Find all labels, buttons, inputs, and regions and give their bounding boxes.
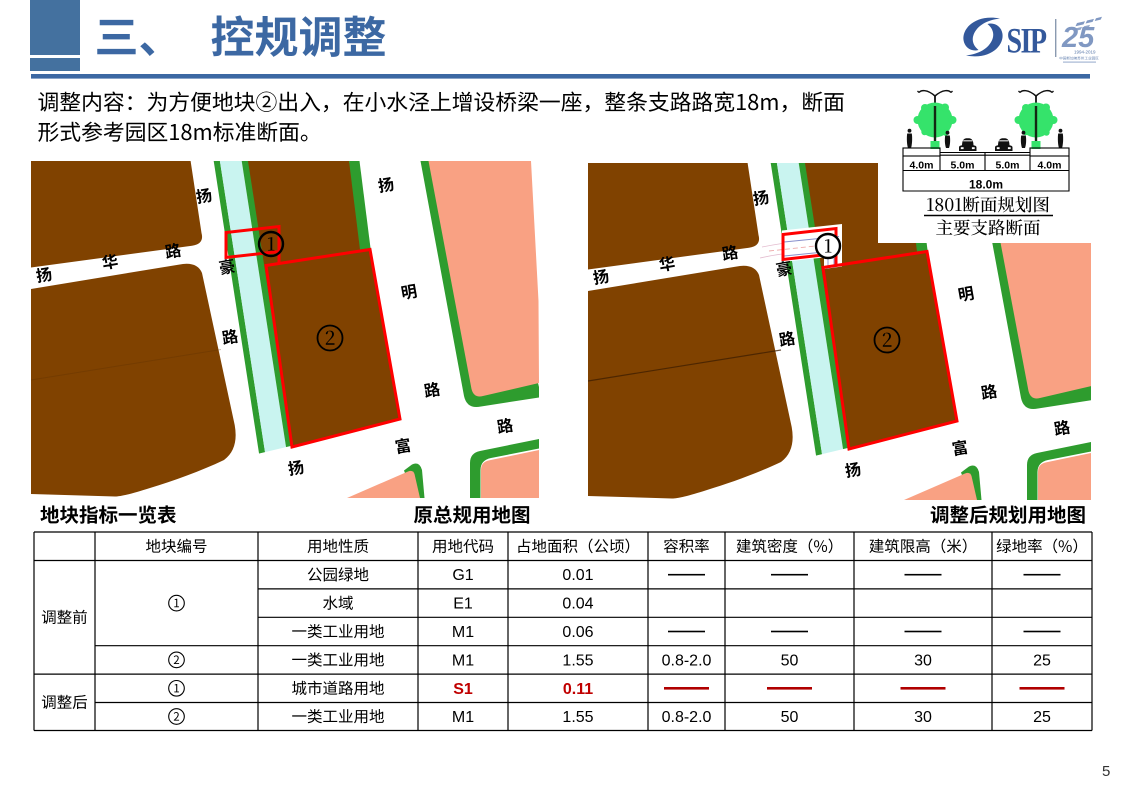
- svg-text:4.0m: 4.0m: [1038, 160, 1062, 172]
- svg-text:0.8-2.0: 0.8-2.0: [662, 652, 712, 669]
- svg-text:M1: M1: [452, 709, 474, 726]
- svg-text:0.06: 0.06: [562, 624, 593, 641]
- svg-text:5.0m: 5.0m: [951, 160, 975, 172]
- svg-text:0.8-2.0: 0.8-2.0: [662, 709, 712, 726]
- svg-text:50: 50: [781, 709, 799, 726]
- svg-text:25: 25: [1033, 652, 1051, 669]
- svg-text:4.0m: 4.0m: [910, 160, 934, 172]
- svg-text:30: 30: [914, 652, 932, 669]
- svg-text:50: 50: [781, 652, 799, 669]
- svg-text:5: 5: [1102, 763, 1110, 780]
- svg-text:30: 30: [914, 709, 932, 726]
- svg-text:1994-2019: 1994-2019: [1074, 50, 1096, 55]
- svg-text:18.0m: 18.0m: [969, 178, 1003, 192]
- svg-text:SIP: SIP: [1006, 20, 1047, 60]
- svg-text:1.55: 1.55: [562, 709, 593, 726]
- svg-text:5.0m: 5.0m: [996, 160, 1020, 172]
- svg-text:G1: G1: [452, 567, 473, 584]
- svg-text:1.55: 1.55: [562, 652, 593, 669]
- svg-text:0.11: 0.11: [563, 681, 593, 698]
- svg-text:25: 25: [1033, 709, 1051, 726]
- svg-text:E1: E1: [453, 596, 473, 613]
- svg-text:0.01: 0.01: [562, 567, 593, 584]
- svg-text:0.04: 0.04: [562, 596, 593, 613]
- svg-text:S1: S1: [453, 681, 473, 698]
- svg-text:M1: M1: [452, 624, 474, 641]
- svg-text:M1: M1: [452, 652, 474, 669]
